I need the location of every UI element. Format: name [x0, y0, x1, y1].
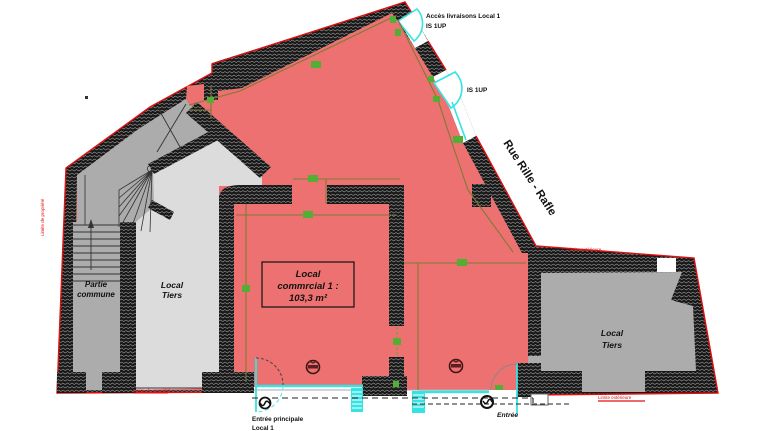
svg-text:IS 1UP: IS 1UP	[426, 23, 447, 30]
svg-text:103,3 m²: 103,3 m²	[289, 293, 328, 304]
svg-text:Limite de propriété: Limite de propriété	[40, 198, 45, 236]
svg-text:Partie: Partie	[85, 280, 108, 289]
svg-text:commrcial 1 :: commrcial 1 :	[277, 281, 338, 292]
svg-text:Entrée: Entrée	[497, 412, 518, 419]
svg-text:Accès livraisons Local 1: Accès livraisons Local 1	[426, 13, 501, 20]
svg-text:Tiers: Tiers	[162, 290, 182, 300]
svg-text:IS 1UP: IS 1UP	[467, 87, 488, 94]
svg-text:Local: Local	[161, 280, 184, 290]
svg-text:Local: Local	[601, 328, 624, 338]
svg-text:Limite de propriété: Limite de propriété	[133, 388, 171, 393]
svg-text:Local 1: Local 1	[252, 425, 274, 431]
svg-text:Limite extérieure: Limite extérieure	[598, 395, 632, 400]
svg-text:Entrée principale: Entrée principale	[252, 416, 304, 423]
svg-text:Local: Local	[296, 269, 321, 280]
svg-text:commune: commune	[77, 290, 115, 299]
svg-text:Limite extérieure: Limite extérieure	[568, 247, 602, 252]
svg-text:Tiers: Tiers	[602, 340, 622, 350]
